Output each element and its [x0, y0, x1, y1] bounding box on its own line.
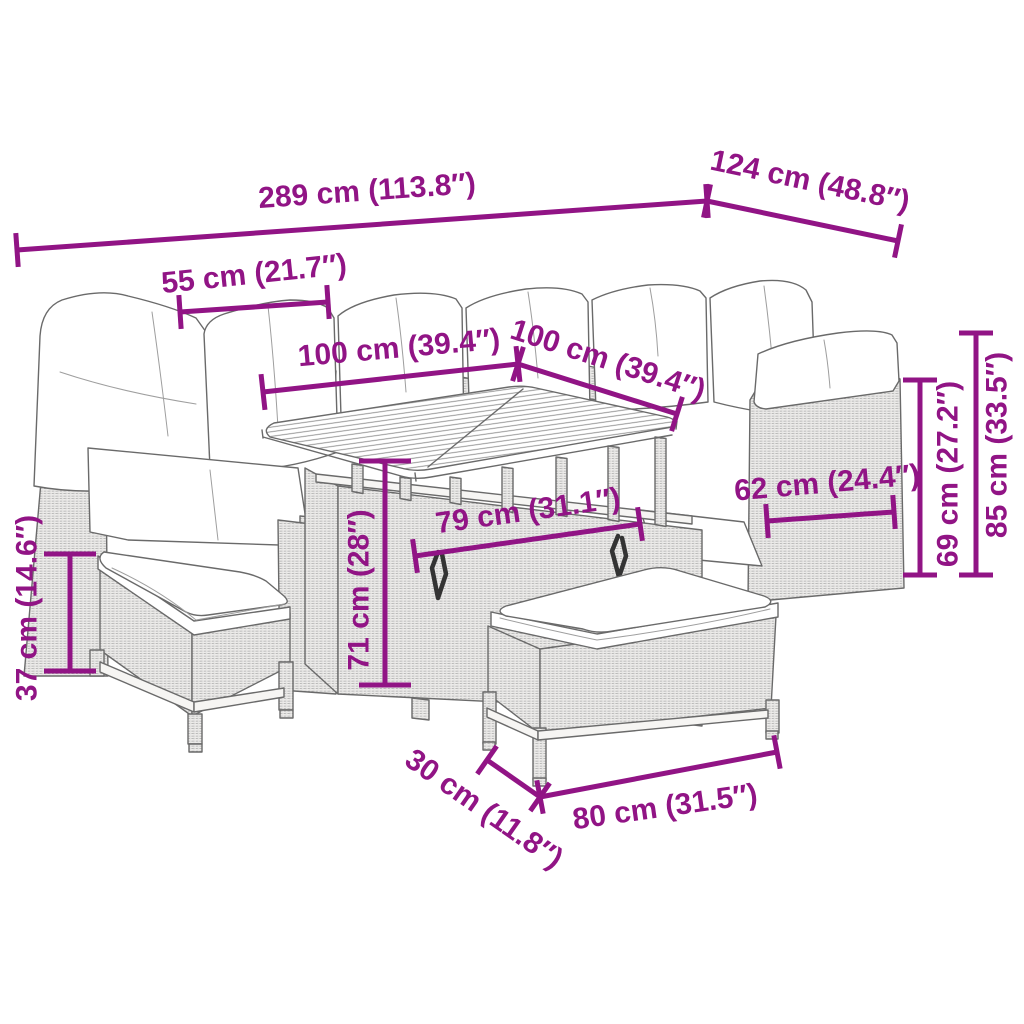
dimension-tick	[766, 504, 768, 538]
bench-left-foot	[189, 744, 202, 752]
dimension-tick	[179, 295, 181, 329]
dimension-bench-length: 80 cm (31.5″)	[537, 735, 780, 836]
dimension-sofa-height: 85 cm (33.5″)	[959, 333, 1014, 575]
furniture-dimension-diagram: 289 cm (113.8″)124 cm (48.8″)55 cm (21.7…	[0, 0, 1024, 1024]
dimension-tick	[893, 495, 895, 529]
dimension-label-sofa-height: 85 cm (33.5″)	[981, 352, 1014, 538]
dimension-sofa-length: 289 cm (113.8″)	[16, 167, 708, 267]
dimension-tick	[895, 224, 902, 257]
dimension-tick	[16, 233, 18, 267]
table-foot	[412, 698, 429, 720]
dimension-label-bench-height: 37 cm (14.6″)	[11, 515, 44, 701]
dimension-label-seat-width-left: 55 cm (21.7″)	[160, 248, 349, 300]
dimension-tick	[774, 735, 780, 768]
dimension-label-table-height: 71 cm (28″)	[343, 509, 376, 670]
bench-left-foot	[280, 710, 293, 718]
dimension-tick	[327, 285, 329, 319]
dimension-line	[487, 760, 540, 797]
bench-right	[483, 568, 779, 786]
dimension-sofa-depth-right: 124 cm (48.8″)	[704, 144, 913, 258]
dimension-label-sofa-length: 289 cm (113.8″)	[257, 167, 477, 215]
table-body-left-face	[305, 468, 338, 694]
bench-left	[90, 552, 293, 752]
dimension-label-seat-height-back: 69 cm (27.2″)	[932, 381, 965, 567]
dimension-line	[17, 201, 707, 250]
product-dimension-diagram-page: 289 cm (113.8″)124 cm (48.8″)55 cm (21.7…	[0, 0, 1024, 1024]
